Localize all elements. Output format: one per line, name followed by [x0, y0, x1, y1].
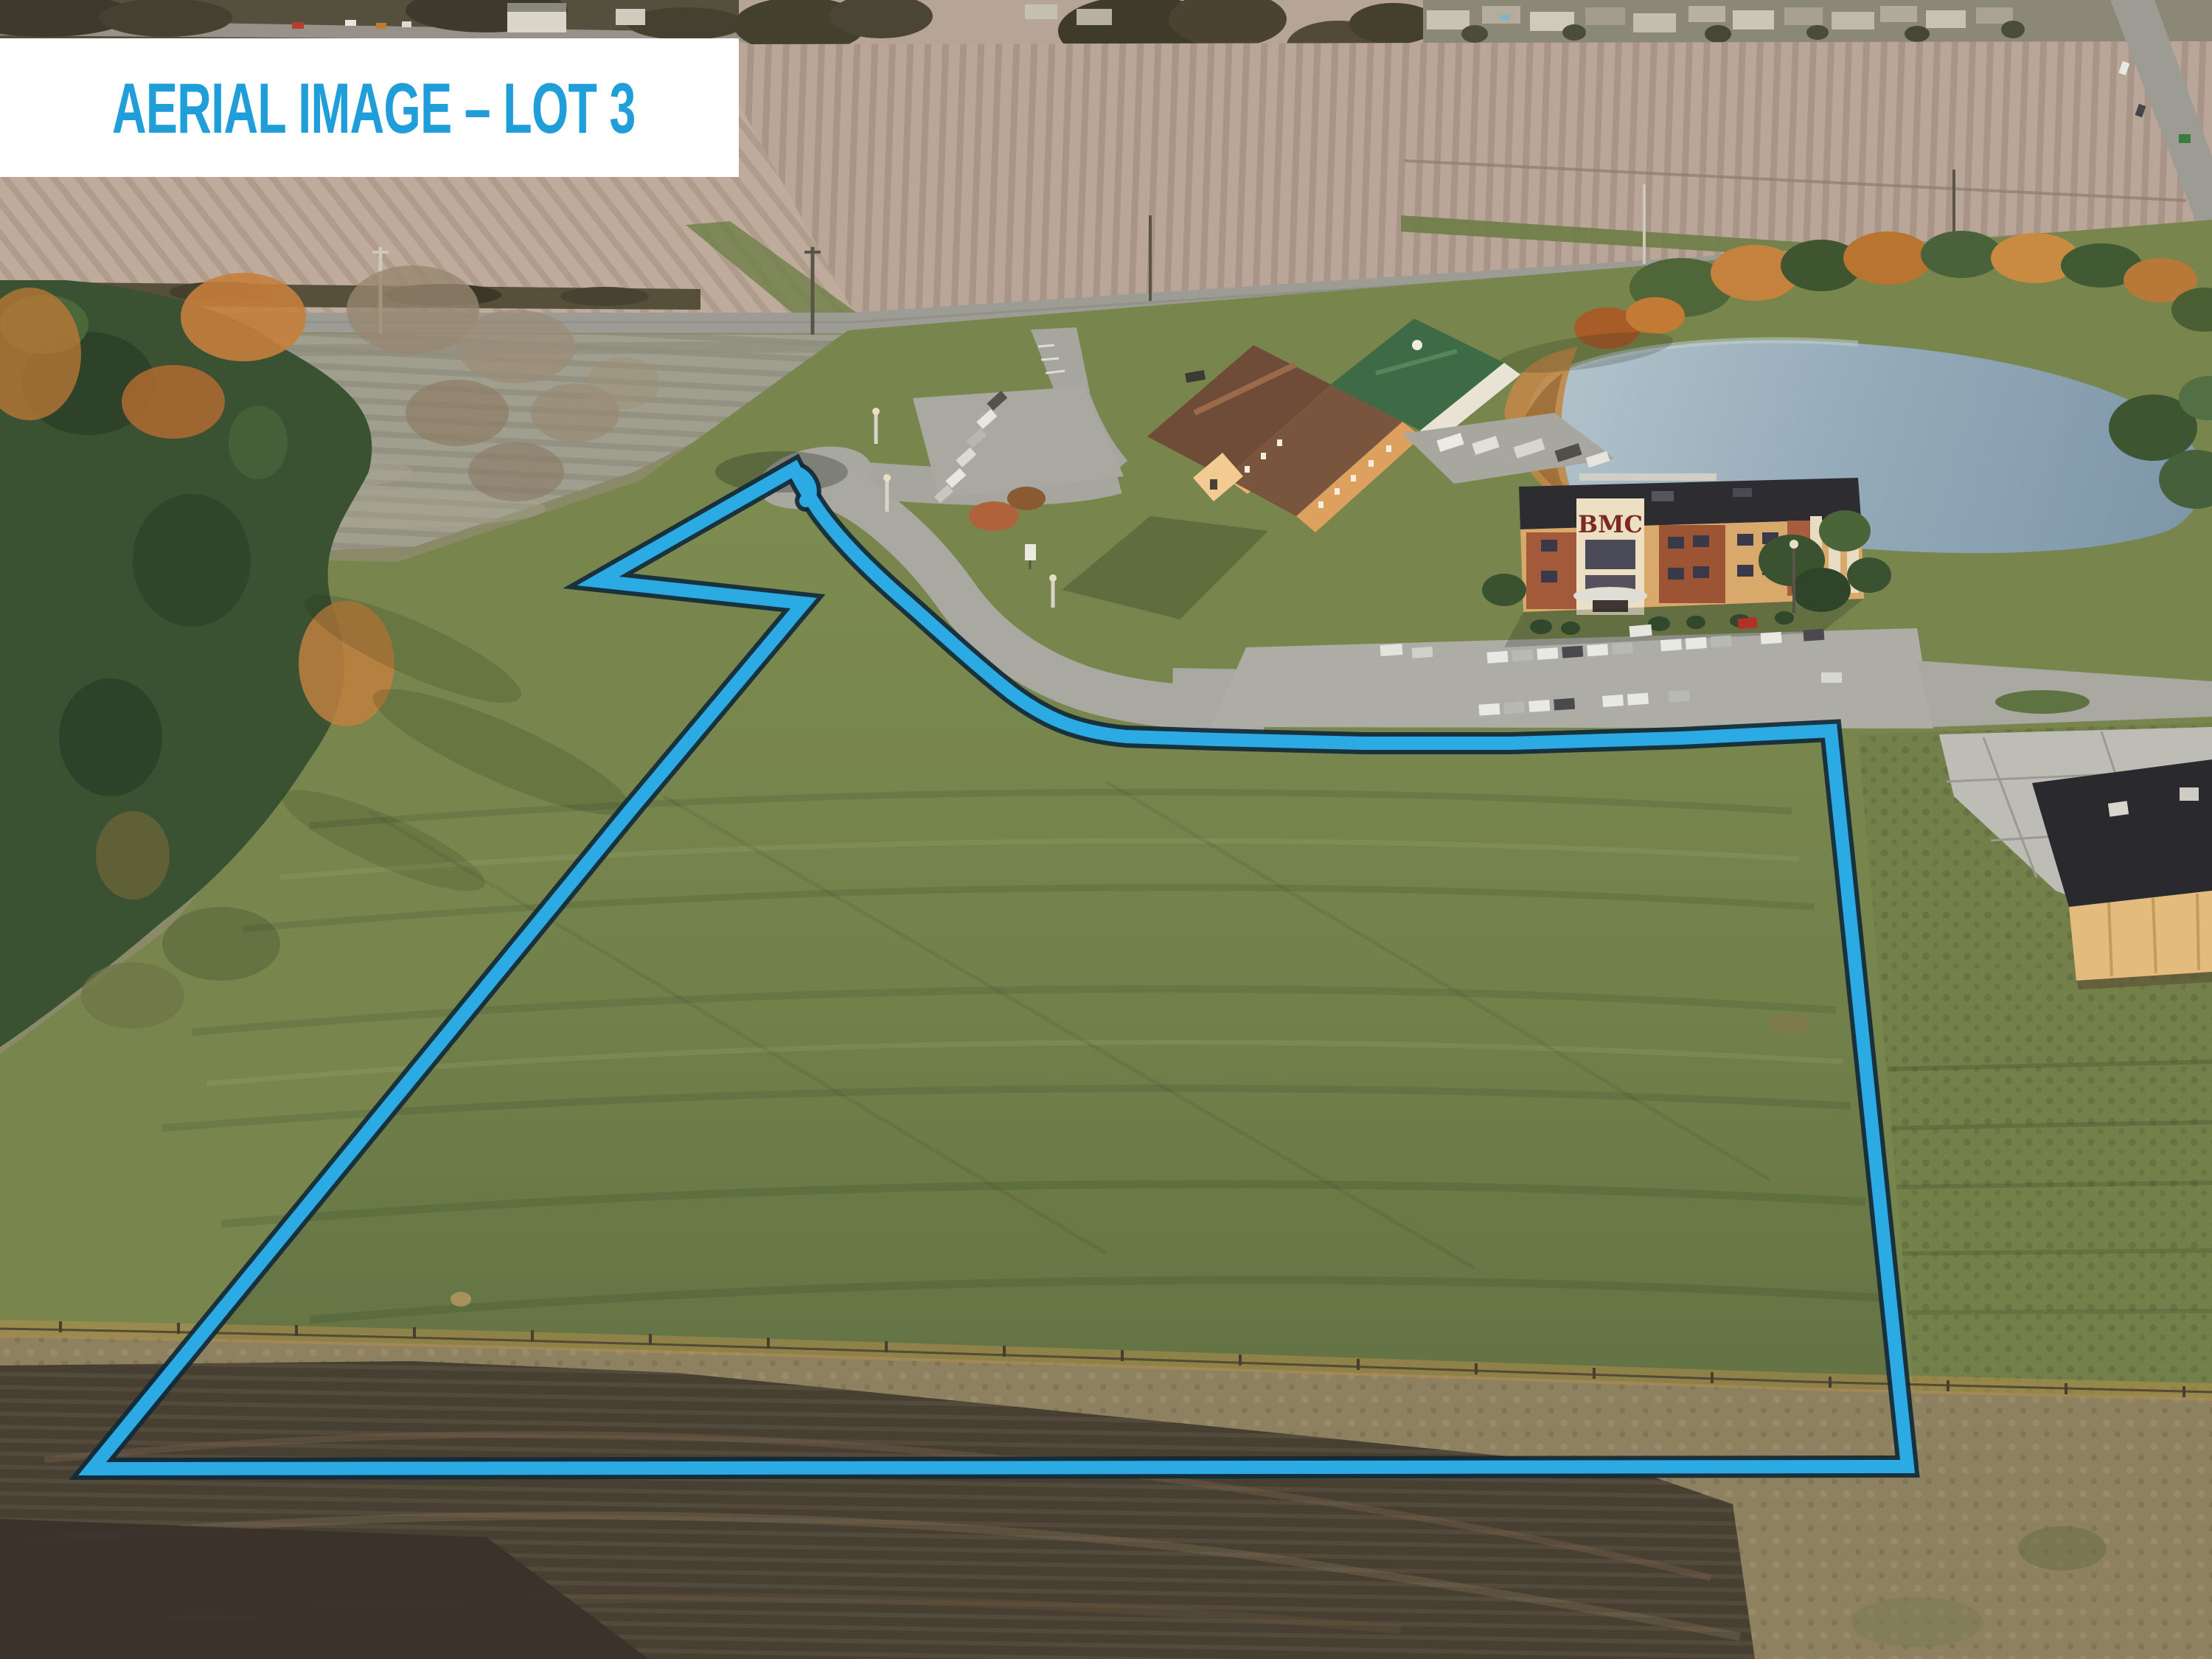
bmc-building: BMC	[1482, 473, 1891, 647]
banner-title: AERIAL IMAGE – LOT 3	[112, 68, 636, 147]
bmc-sign-text: BMC	[1578, 510, 1643, 538]
title-banner: AERIAL IMAGE – LOT 3	[0, 38, 739, 177]
aerial-photo: BMC	[0, 0, 2212, 1659]
road-sign	[1025, 544, 1036, 560]
houses-row	[1423, 0, 2212, 43]
